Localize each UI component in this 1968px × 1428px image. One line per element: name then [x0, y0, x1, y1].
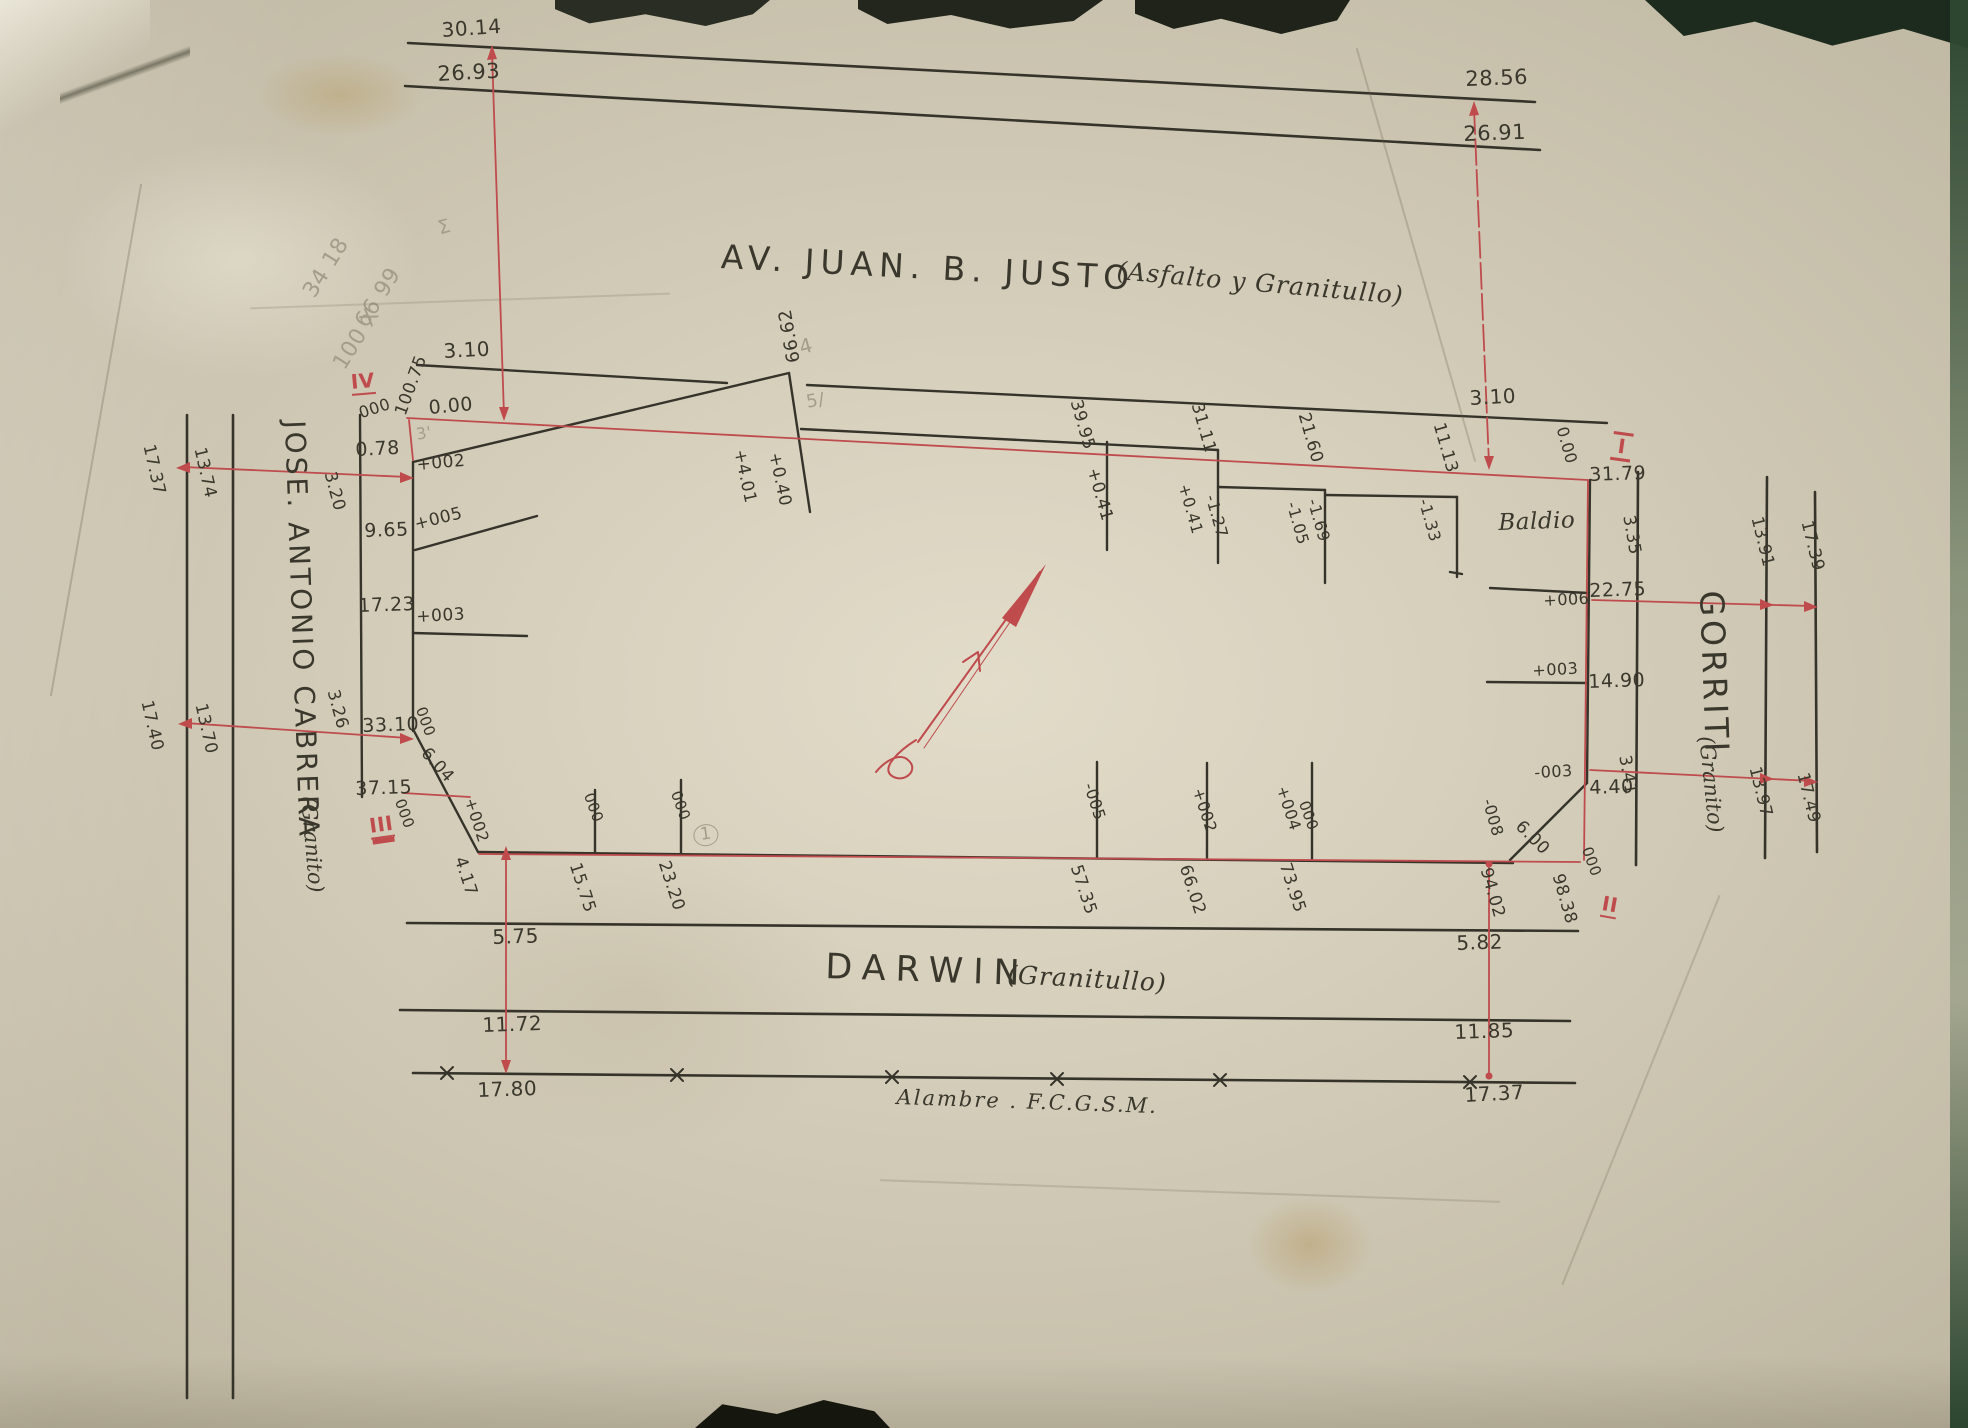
measurement-label: 37.15	[355, 778, 413, 799]
measurement-label: 14.90	[1588, 671, 1646, 692]
dim-top-30-14: 30.14	[441, 16, 502, 40]
dim-darwin-11-85: 11.85	[1454, 1020, 1514, 1042]
dim-darwin-17-80: 17.80	[477, 1078, 537, 1100]
dim-3-10-right: 3.10	[1469, 386, 1517, 408]
north-arrow	[876, 564, 1046, 778]
survey-plan-sheet: AV. JUAN. B. JUSTO (Asfalto y Granitullo…	[0, 0, 1968, 1428]
measurement-label: +003	[416, 606, 466, 626]
street-label-darwin: DARWIN	[825, 950, 1030, 992]
corner-marker-iii: III	[368, 813, 395, 840]
measurement-label: 33.10	[362, 715, 420, 736]
baldio-label: Baldio	[1498, 509, 1576, 535]
measurement-label: 9.65	[364, 520, 409, 541]
street-name: GORRITI	[1692, 590, 1737, 756]
corner-marker-i: I	[1610, 431, 1634, 462]
datum-0-00-left: 0.00	[428, 395, 474, 418]
dim-3-10-left: 3.10	[443, 339, 491, 361]
measurement-label: 31.79	[1589, 464, 1647, 485]
corner-marker-iv: IV	[350, 370, 376, 396]
street-label-gorriti: GORRITI	[1695, 590, 1734, 756]
parcel-lines	[360, 365, 1607, 863]
measurement-label: 17.23	[358, 595, 416, 616]
dim-darwin-5-82: 5.82	[1456, 931, 1503, 953]
dim-darwin-17-37: 17.37	[1464, 1082, 1525, 1105]
measurement-label: +003	[1532, 661, 1579, 679]
dim-top-26-91: 26.91	[1463, 122, 1526, 145]
measurement-label: 3'	[415, 424, 433, 442]
street-name: DARWIN	[825, 947, 1031, 994]
dim-top-28-56: 28.56	[1465, 67, 1528, 90]
measurement-label: -003	[1534, 763, 1573, 781]
measurement-label: +002	[416, 453, 466, 474]
measurement-label: +006	[1543, 591, 1590, 609]
measurement-label: 22.75	[1589, 580, 1647, 601]
dim-darwin-5-75: 5.75	[492, 925, 539, 947]
measurement-label: 0.78	[355, 439, 400, 460]
measurement-label: 5/	[805, 391, 826, 412]
dim-top-26-93: 26.93	[437, 61, 501, 85]
dim-darwin-11-72: 11.72	[482, 1013, 542, 1035]
